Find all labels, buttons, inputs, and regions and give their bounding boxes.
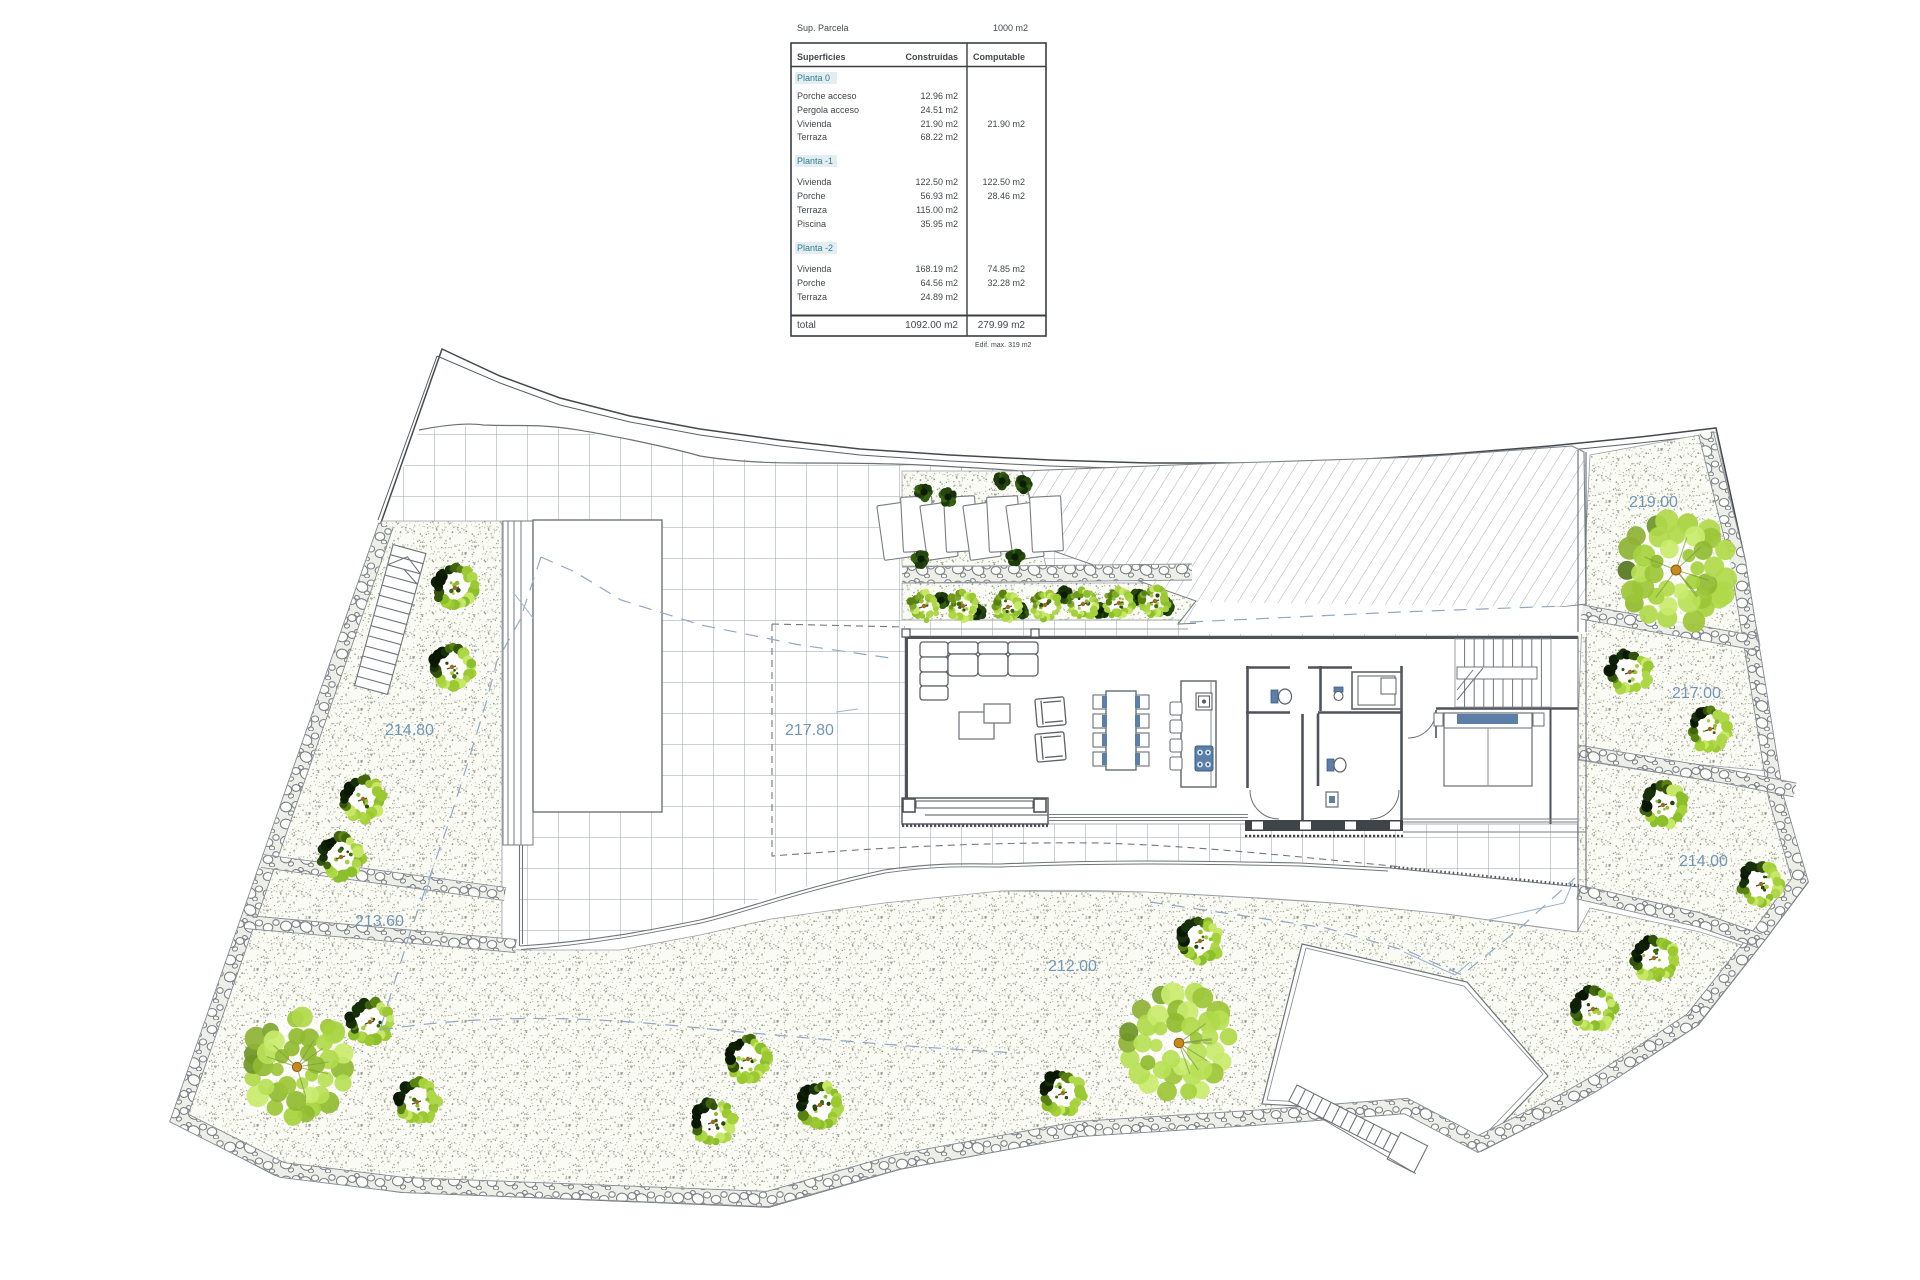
- svg-text:Sup. Parcela: Sup. Parcela: [797, 23, 849, 33]
- svg-text:Superficies: Superficies: [797, 52, 846, 62]
- svg-text:Construidas: Construidas: [905, 52, 958, 62]
- svg-text:32.28 m2: 32.28 m2: [987, 278, 1025, 288]
- svg-text:35.95 m2: 35.95 m2: [920, 219, 958, 229]
- svg-text:24.89 m2: 24.89 m2: [920, 292, 958, 302]
- svg-text:24.51 m2: 24.51 m2: [920, 105, 958, 115]
- svg-text:Porche acceso: Porche acceso: [797, 91, 857, 101]
- svg-text:Planta -1: Planta -1: [797, 156, 833, 166]
- svg-text:21.90 m2: 21.90 m2: [987, 119, 1025, 129]
- svg-text:Vivienda: Vivienda: [797, 177, 831, 187]
- svg-text:1092.00 m2: 1092.00 m2: [905, 320, 958, 331]
- svg-text:Pergola acceso: Pergola acceso: [797, 105, 859, 115]
- svg-text:214.00: 214.00: [1679, 853, 1728, 870]
- svg-text:74.85 m2: 74.85 m2: [987, 264, 1025, 274]
- svg-text:Planta 0: Planta 0: [797, 73, 830, 83]
- svg-text:217.00: 217.00: [1672, 685, 1721, 702]
- svg-text:168.19 m2: 168.19 m2: [915, 264, 958, 274]
- svg-text:Vivienda: Vivienda: [797, 264, 831, 274]
- svg-text:Porche: Porche: [797, 191, 826, 201]
- svg-text:Terraza: Terraza: [797, 132, 827, 142]
- svg-text:Vivienda: Vivienda: [797, 119, 831, 129]
- svg-text:56.93 m2: 56.93 m2: [920, 191, 958, 201]
- svg-text:279.99 m2: 279.99 m2: [978, 320, 1026, 331]
- svg-text:122.50 m2: 122.50 m2: [982, 177, 1025, 187]
- svg-text:64.56 m2: 64.56 m2: [920, 278, 958, 288]
- svg-text:Computable: Computable: [973, 52, 1025, 62]
- svg-text:217.80: 217.80: [785, 722, 834, 739]
- svg-text:21.90 m2: 21.90 m2: [920, 119, 958, 129]
- svg-text:115.00 m2: 115.00 m2: [916, 205, 958, 215]
- svg-text:1000 m2: 1000 m2: [993, 23, 1028, 33]
- svg-text:213.60: 213.60: [355, 913, 404, 930]
- svg-text:total: total: [797, 320, 816, 331]
- svg-text:Edif. max. 319 m2: Edif. max. 319 m2: [975, 342, 1032, 349]
- svg-text:Piscina: Piscina: [797, 219, 826, 229]
- svg-text:12.96 m2: 12.96 m2: [920, 91, 958, 101]
- svg-text:Terraza: Terraza: [797, 205, 827, 215]
- svg-text:Terraza: Terraza: [797, 292, 827, 302]
- svg-text:214.80: 214.80: [385, 722, 434, 739]
- svg-text:219.00: 219.00: [1629, 494, 1678, 511]
- svg-text:28.46 m2: 28.46 m2: [987, 191, 1025, 201]
- svg-text:122.50 m2: 122.50 m2: [915, 177, 958, 187]
- svg-text:Porche: Porche: [797, 278, 826, 288]
- svg-text:Planta -2: Planta -2: [797, 243, 833, 253]
- svg-text:212.00: 212.00: [1048, 958, 1097, 975]
- svg-text:68.22 m2: 68.22 m2: [920, 132, 958, 142]
